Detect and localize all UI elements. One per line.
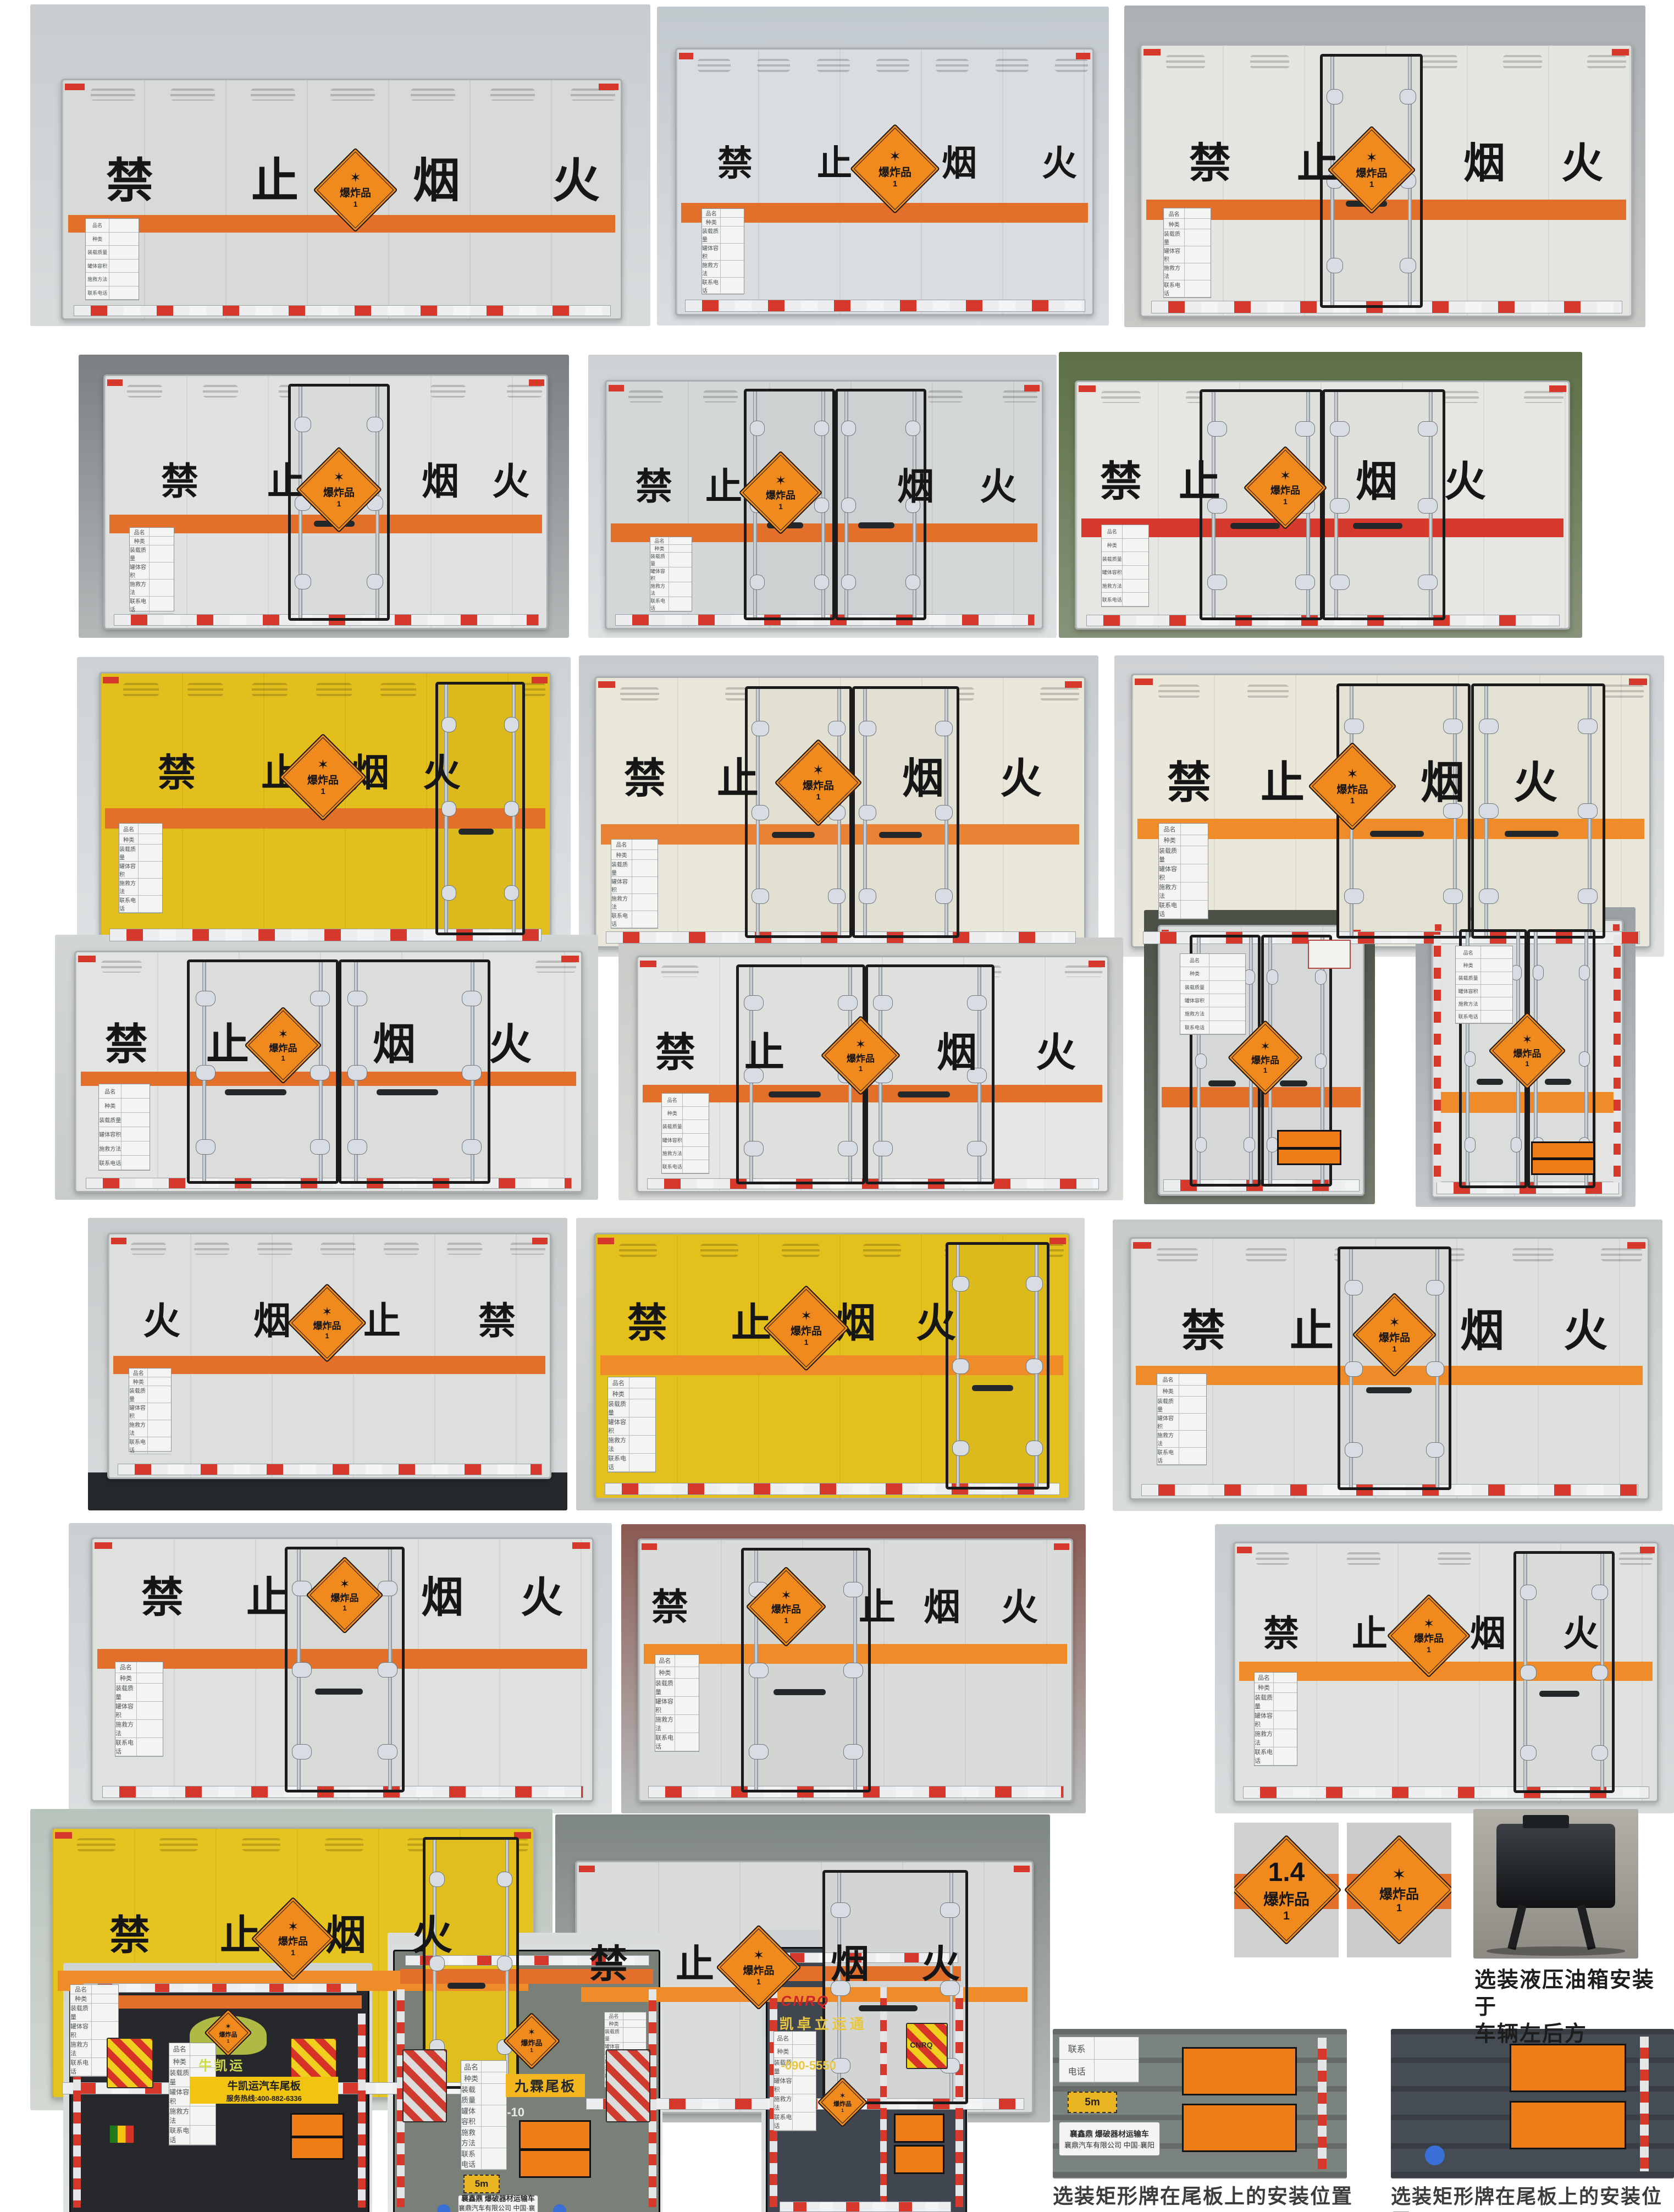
truck-18: 禁止烟火✶爆炸品1品名种类装载质量罐体容积施救方法联系电话	[621, 1524, 1086, 1813]
placard-content: 1.4爆炸品1	[1247, 1851, 1325, 1929]
door-handle	[879, 832, 922, 838]
door-hinge	[905, 575, 920, 590]
no-fire-character: 火	[1563, 1309, 1607, 1353]
info-table-value	[1274, 1729, 1297, 1747]
placard-content: ✶爆炸品1	[292, 746, 354, 808]
side-reflector-stripe	[358, 2014, 366, 2208]
info-table-label: 联系电话	[1164, 280, 1185, 297]
placard-label: 爆炸品	[331, 1590, 359, 1604]
corner-reflector	[1079, 385, 1096, 392]
tank-cap	[1523, 1815, 1569, 1828]
info-table-row: 联系	[1059, 2037, 1139, 2060]
door-hinge	[859, 721, 876, 736]
door-hinge	[859, 805, 876, 820]
door-hinge	[838, 995, 858, 1011]
info-table-label: 种类	[1255, 1683, 1274, 1693]
info-table-row: 品名	[70, 1985, 118, 1994]
roof-vent	[316, 683, 352, 697]
door-handle	[1539, 1691, 1579, 1697]
reflective-strip	[685, 300, 1085, 312]
info-table-value	[139, 879, 162, 895]
info-table-label: 品名	[86, 219, 109, 232]
roof-vent	[661, 966, 699, 977]
placard-content: ✶爆炸品1	[758, 1578, 815, 1635]
info-table-row: 品名	[1456, 946, 1512, 959]
info-table: 品名种类装载质量罐体容积施救方法联系电话	[655, 1654, 699, 1752]
info-table-value	[109, 233, 139, 246]
placard-class: 1	[784, 1616, 788, 1625]
info-table-value	[1209, 981, 1245, 994]
no-fire-character: 火	[1001, 1589, 1038, 1626]
rect-plate-photo-right	[1391, 2029, 1674, 2178]
caption-rect-plate-right: 选装矩形牌在尾板上的安装位置	[1391, 2184, 1674, 2212]
roof-vent	[411, 89, 455, 101]
corner-reflector	[1143, 49, 1161, 56]
placard-content: ✶爆炸品1	[1256, 458, 1315, 517]
info-table-label: 施救方法	[130, 580, 150, 596]
info-table-row: 施救方法	[650, 582, 692, 597]
info-table-row: 施救方法	[99, 1141, 150, 1156]
no-fire-character: 禁	[105, 1023, 148, 1066]
door-hinge	[462, 1139, 482, 1155]
info-table-row: 装载质量	[70, 2004, 118, 2022]
roof-vent	[1347, 1552, 1380, 1565]
info-table-row: 联系电话	[99, 1156, 150, 1170]
no-fire-character: 禁	[106, 157, 153, 205]
info-table-value	[669, 567, 692, 582]
placard-label: 爆炸品	[340, 185, 371, 200]
placard-class: 1	[325, 1332, 329, 1340]
no-fire-character: 禁	[589, 1945, 628, 1983]
info-table-value	[675, 1679, 699, 1696]
info-table-label: 施救方法	[129, 1420, 148, 1437]
explosion-icon: ✶	[813, 764, 824, 777]
door-hinge	[1345, 1280, 1363, 1295]
placard-label: 爆炸品	[771, 1602, 801, 1616]
info-table-row: 装载质量	[1164, 229, 1211, 246]
door-hinge	[1479, 803, 1499, 819]
info-table-row: 装载质量	[1159, 846, 1208, 864]
corner-reflector	[1629, 679, 1647, 685]
truck-8: 禁止烟火✶爆炸品1品名种类装载质量罐体容积施救方法联系电话	[579, 655, 1098, 957]
placard-label: 爆炸品	[521, 2037, 542, 2048]
roof-vent	[1601, 1248, 1642, 1261]
info-table-label: 罐体容积	[1180, 994, 1209, 1007]
placard-label: 爆炸品	[313, 1318, 341, 1332]
orange-rectangular-plate	[1182, 2104, 1297, 2152]
corner-reflector	[598, 681, 615, 688]
roof-vent	[703, 390, 738, 402]
info-table-row: 品名	[611, 840, 658, 850]
door-handle	[458, 829, 494, 835]
info-table-value	[190, 2106, 216, 2125]
brand-banner: 九霖尾板	[506, 2074, 585, 2097]
truck-6: 禁止烟火✶爆炸品1品名种类装载质量罐体容积施救方法联系电话	[1059, 352, 1582, 638]
info-table-label: 品名	[169, 2043, 190, 2055]
info-table-value	[683, 1160, 709, 1173]
corner-reflector	[1640, 1547, 1655, 1553]
info-table-row: 施救方法	[611, 894, 658, 911]
info-table-value	[675, 1697, 699, 1714]
placard-class: 1	[841, 2108, 843, 2113]
door-hinge	[744, 995, 764, 1011]
info-table-row: 罐体容积	[702, 244, 744, 261]
info-table-value	[683, 1134, 709, 1146]
corner-reflector	[1549, 385, 1566, 392]
info-table-row: 施救方法	[130, 580, 174, 597]
info-table-value	[623, 2020, 646, 2027]
no-fire-character: 止	[676, 1945, 714, 1983]
door-hinge	[940, 1902, 960, 1918]
info-table-label: 品名	[1164, 208, 1185, 218]
roof-vent	[380, 683, 416, 697]
info-table-row: 装载质量	[1157, 1397, 1206, 1414]
roof-vent	[628, 390, 663, 402]
no-fire-character: 禁	[651, 1589, 688, 1626]
no-fire-character: 止	[705, 468, 742, 505]
info-table-value	[675, 1655, 699, 1667]
placard-content: ✶爆炸品1	[787, 752, 849, 814]
roof-vent	[490, 89, 535, 101]
info-table-label: 装载质量	[119, 845, 139, 861]
info-table-label: 罐体容积	[461, 2105, 482, 2126]
door-hinge	[441, 717, 456, 732]
orange-rectangular-plate	[894, 2114, 944, 2143]
door-hinge	[1533, 965, 1544, 980]
corner-reflector	[1054, 1543, 1069, 1550]
door-hinge	[814, 575, 829, 590]
placard-number: 1.4	[1268, 1857, 1305, 1888]
info-table-value	[1209, 1007, 1245, 1020]
placard-class: 1	[1283, 1910, 1290, 1923]
roof-vent	[203, 385, 238, 398]
info-table-row: 品名	[99, 1084, 150, 1099]
info-table-label: 装载质量	[129, 1386, 148, 1403]
door-hinge	[1327, 258, 1343, 273]
door-hinge	[752, 889, 769, 904]
door-handle	[972, 1385, 1013, 1391]
info-table-row: 品名	[461, 2061, 506, 2072]
roof-vent	[1418, 55, 1457, 69]
info-table-value	[1181, 882, 1208, 900]
info-table-row: 施救方法	[662, 1147, 709, 1160]
info-table-row: 装载质量	[662, 1120, 709, 1133]
info-table-value	[1123, 539, 1148, 552]
truck-box-body: 禁止烟火✶爆炸品1品名种类装载质量罐体容积施救方法联系电话	[61, 79, 622, 320]
info-table-value	[675, 1733, 699, 1751]
truck-box-body: 禁止烟火✶爆炸品1品名种类装载质量罐体容积施救方法联系电话	[638, 1538, 1073, 1802]
info-table-label: 种类	[774, 2045, 793, 2057]
truck-13: ✶爆炸品1品名种类装载质量罐体容积施救方法联系电话	[1416, 907, 1636, 1207]
no-fire-character: 禁	[636, 468, 672, 505]
placard-label: 爆炸品	[847, 1051, 875, 1064]
brand-banner-main: 牛凯运汽车尾板	[228, 2078, 301, 2093]
truck-box-body: 禁止烟火✶爆炸品1品名种类装载质量罐体容积施救方法联系电话	[594, 676, 1086, 948]
explosion-icon: ✶	[855, 1038, 866, 1051]
info-table-row: 罐体容积	[1102, 566, 1148, 580]
info-table-label: 联系电话	[129, 1437, 148, 1454]
info-table-value	[190, 2126, 216, 2144]
door-hinge	[843, 1663, 863, 1678]
roof-vent	[384, 1243, 419, 1255]
info-table-row: 种类	[662, 1107, 709, 1120]
info-table-label: 品名	[1159, 824, 1181, 835]
roof-vent	[170, 89, 215, 101]
explosive-placard: ✶爆炸品1	[775, 739, 863, 827]
five-m-sticker: 5m	[463, 2175, 500, 2193]
info-table-label: 施救方法	[1102, 580, 1123, 593]
info-table-row: 品名	[119, 824, 162, 834]
info-table-row: 种类	[650, 545, 692, 553]
info-table-value	[121, 1127, 150, 1141]
info-table-label: 装载质量	[169, 2068, 190, 2087]
door-handle	[377, 1089, 438, 1095]
info-table-value	[623, 2012, 646, 2020]
truck-14: 火烟止禁✶爆炸品1品名种类装载质量罐体容积施救方法联系电话	[88, 1218, 567, 1510]
door-hinge	[1026, 1276, 1043, 1292]
placard-label: 爆炸品	[743, 1962, 774, 1977]
roof-vent	[1166, 55, 1205, 69]
brand-name-text: 凯卓立运通	[780, 2013, 868, 2033]
info-table-row: 罐体容积	[650, 567, 692, 582]
truck-box-body: 禁止烟火✶爆炸品1品名种类装载质量罐体容积施救方法联系电话	[99, 672, 551, 945]
placard-content: ✶爆炸品1	[511, 2021, 552, 2061]
corner-reflector	[1612, 49, 1629, 56]
info-table-value	[721, 244, 744, 260]
no-fire-character: 烟	[937, 1033, 977, 1073]
roof-vent	[1256, 1552, 1289, 1565]
truck-9: 禁止烟火✶爆炸品1品名种类装载质量罐体容积施救方法联系电话	[1114, 655, 1664, 957]
info-table-row: 联系电话	[115, 1738, 163, 1756]
info-table-label: 施救方法	[655, 1715, 675, 1733]
info-table-label: 联系电话	[1456, 1011, 1481, 1023]
info-table-value	[1179, 1397, 1206, 1413]
info-table-label: 装载质量	[608, 1399, 629, 1417]
door-hinge	[752, 805, 769, 820]
hydraulic-oil-tank-photo	[1473, 1809, 1638, 1959]
info-table: 品名种类装载质量罐体容积施救方法联系电话	[129, 1368, 172, 1452]
info-table-label: 品名	[611, 840, 632, 850]
info-table-row: 施救方法	[1159, 882, 1208, 901]
info-table-label: 品名	[1157, 1374, 1179, 1385]
info-table-row: 联系电话	[1456, 1011, 1512, 1023]
truck-15: 禁止烟火✶爆炸品1品名种类装载质量罐体容积施救方法联系电话	[576, 1218, 1085, 1510]
info-table-label: 联系电话	[130, 597, 150, 613]
roof-vent	[1512, 1248, 1554, 1261]
info-table: 品名种类装载质量罐体容积施救方法联系电话	[1157, 1373, 1207, 1465]
info-table-row: 装载质量	[115, 1684, 163, 1702]
corner-reflector	[529, 379, 544, 386]
placard-class: 1	[281, 1054, 285, 1062]
door-hinge	[952, 1276, 969, 1292]
no-fire-character: 火	[916, 1303, 956, 1343]
info-table-label: 罐体容积	[611, 877, 632, 893]
corner-reflector	[1627, 1242, 1645, 1249]
info-table-value	[793, 2112, 816, 2130]
info-table-label: 罐体容积	[608, 1417, 629, 1435]
info-table-value	[150, 528, 174, 536]
info-table-label: 装载质量	[1164, 229, 1185, 246]
info-table-label: 品名	[605, 2012, 623, 2020]
info-table-value	[139, 862, 162, 878]
info-table-label: 施救方法	[702, 261, 721, 277]
info-table-label: 联系电话	[119, 896, 139, 912]
info-table-label: 施救方法	[1157, 1431, 1179, 1447]
info-table-label: 罐体容积	[1159, 864, 1181, 882]
door-hinge	[1592, 1585, 1608, 1600]
info-table-label: 装载质量	[1456, 972, 1481, 984]
info-table-row: 种类	[86, 233, 139, 246]
corner-reflector	[642, 1543, 657, 1550]
truck-box-body: 禁止烟火✶爆炸品1品名种类装载质量罐体容积施救方法联系电话	[594, 1233, 1070, 1499]
door-hinge	[1330, 498, 1350, 514]
caption-fuel-tank-line1: 选装液压油箱安装于	[1474, 1967, 1674, 2021]
info-table-value	[1185, 208, 1211, 218]
flag-sticker	[109, 2125, 134, 2143]
info-table-row: 种类	[129, 1377, 171, 1386]
no-fire-character: 火	[1036, 1033, 1076, 1073]
info-table-label: 罐体容积	[1157, 1414, 1179, 1430]
info-table-label: 联系电话	[774, 2112, 793, 2130]
info-table-row: 联系电话	[169, 2126, 216, 2145]
info-table-label: 施救方法	[1164, 263, 1185, 280]
no-fire-character: 烟	[421, 1577, 463, 1619]
corner-reflector	[532, 1238, 548, 1244]
plate-divider	[292, 2136, 342, 2138]
info-table-row: 罐体容积	[99, 1127, 150, 1141]
roof-vent	[510, 1243, 545, 1255]
info-table-label: 联系电话	[1157, 1448, 1179, 1464]
info-table-row: 电话	[1059, 2060, 1139, 2082]
info-table-value	[1095, 2037, 1139, 2059]
explosive-placard: ✶爆炸品1	[1352, 1292, 1437, 1377]
corner-reflector	[561, 956, 579, 962]
truck-box-body: ✶爆炸品1品名种类装载质量罐体容积施救方法联系电话	[1158, 925, 1364, 1196]
corner-reflector	[103, 677, 119, 683]
no-fire-character: 禁	[1167, 761, 1211, 805]
info-table-row: 联系电话	[461, 2148, 506, 2170]
placard-label: 爆炸品	[1414, 1631, 1444, 1645]
info-table-value	[629, 1399, 655, 1417]
info-table-row: 罐体容积	[461, 2105, 506, 2127]
info-table-row: 罐体容积	[655, 1697, 699, 1715]
info-table-label: 品名	[655, 1655, 675, 1667]
info-table-value	[1123, 580, 1148, 593]
door-hinge	[1195, 1137, 1207, 1152]
door-handle	[1545, 1079, 1571, 1085]
info-table-value	[632, 877, 658, 893]
truck-box-body: 禁止烟火✶爆炸品1品名种类装载质量罐体容积施救方法联系电话	[74, 951, 583, 1193]
roof-vent	[996, 59, 1029, 72]
orange-rectangular-plate	[1182, 2047, 1297, 2095]
info-table-label: 品名	[608, 1377, 629, 1388]
info-table-value	[137, 1673, 163, 1684]
door-hinge	[1344, 719, 1364, 734]
info-table-row: 罐体容积	[119, 862, 162, 879]
roof-vent	[321, 1243, 356, 1255]
no-fire-character: 禁	[141, 1577, 184, 1619]
info-table-value	[109, 219, 139, 232]
door-hinge	[828, 889, 846, 904]
info-table-label: 施救方法	[611, 894, 632, 911]
info-table-label: 罐体容积	[655, 1697, 675, 1714]
info-table-row: 种类	[774, 2045, 816, 2058]
no-fire-character: 火	[1513, 761, 1557, 805]
info-table-label: 种类	[130, 537, 150, 545]
no-fire-character: 烟	[1460, 1309, 1504, 1353]
info-table-value	[92, 2004, 118, 2021]
info-table-row: 品名	[650, 537, 692, 545]
info-table-value	[148, 1403, 171, 1420]
roof-vent	[1247, 685, 1289, 698]
info-table-label: 品名	[119, 824, 139, 834]
info-table-row: 联系电话	[655, 1733, 699, 1751]
door-hinge	[841, 575, 856, 590]
orange-rectangular-plate	[1277, 1130, 1341, 1165]
corner-reflector	[1076, 53, 1090, 59]
info-table-label: 种类	[702, 218, 721, 226]
info-table-label: 联系电话	[1180, 1021, 1209, 1034]
info-table-value	[137, 1684, 163, 1701]
info-table-row: 施救方法	[1255, 1729, 1297, 1747]
info-table-row: 品名	[605, 2012, 646, 2020]
info-table-row: 联系电话	[1102, 593, 1148, 606]
corner-reflector	[107, 379, 123, 386]
door-hinge	[814, 421, 829, 436]
info-table-label: 种类	[1456, 959, 1481, 971]
info-table-value	[721, 209, 744, 217]
info-table-row: 装载质量	[605, 2028, 646, 2043]
placard-class: 1	[756, 1977, 761, 1986]
placard-class: 1	[1393, 1344, 1397, 1353]
info-table-row: 种类	[70, 1994, 118, 2004]
truck-box-body: 禁止烟火✶爆炸品1品名种类装载质量罐体容积施救方法联系电话	[1140, 44, 1633, 317]
info-table-row: 装载质量	[1180, 981, 1245, 994]
no-fire-character: 烟	[902, 758, 944, 800]
door-handle	[859, 2005, 918, 2011]
door-hinge	[1418, 575, 1438, 590]
no-fire-character: 烟	[422, 463, 459, 500]
info-table-row: 品名	[1164, 208, 1211, 219]
truck-box-body: 禁止烟火✶爆炸品1品名种类装载质量罐体容积施救方法联系电话	[605, 380, 1043, 630]
truck-box-body: 禁止烟火✶爆炸品1品名种类装载质量罐体容积施救方法联系电话	[1233, 1542, 1659, 1802]
dealer-logo	[1308, 940, 1351, 969]
corner-reflector	[1065, 681, 1082, 688]
placard-content: ✶爆炸品1	[1364, 1305, 1424, 1365]
truck-box-body: 火烟止禁✶爆炸品1品名种类装载质量罐体容积施救方法联系电话	[107, 1233, 551, 1479]
info-table: 品名种类装载质量罐体容积施救方法联系电话	[1180, 953, 1246, 1035]
explosion-icon: ✶	[889, 149, 901, 163]
door-hinge	[843, 1744, 863, 1759]
cargo-door-frame	[822, 1870, 968, 2104]
truck-box-body: 禁止烟火✶爆炸品1品名种类装载质量罐体容积施救方法联系电话	[1129, 1237, 1649, 1500]
corner-reflector	[65, 84, 85, 90]
info-table-row: 联系电话	[119, 896, 162, 913]
roof-vent	[620, 687, 659, 700]
no-fire-character: 止	[1179, 461, 1220, 503]
door-hinge	[1330, 421, 1350, 437]
info-table-row: 罐体容积	[662, 1134, 709, 1147]
no-fire-character: 禁	[1263, 1615, 1299, 1651]
door-hinge	[1426, 1361, 1445, 1377]
roof-vent	[863, 1244, 901, 1257]
info-table-value	[139, 824, 162, 834]
roof-vent	[242, 1838, 280, 1851]
door-hinge	[1579, 965, 1590, 980]
roof-vent	[127, 385, 162, 398]
door-hinge	[1267, 1137, 1278, 1152]
placard-content: ✶爆炸品1	[211, 2016, 245, 2050]
